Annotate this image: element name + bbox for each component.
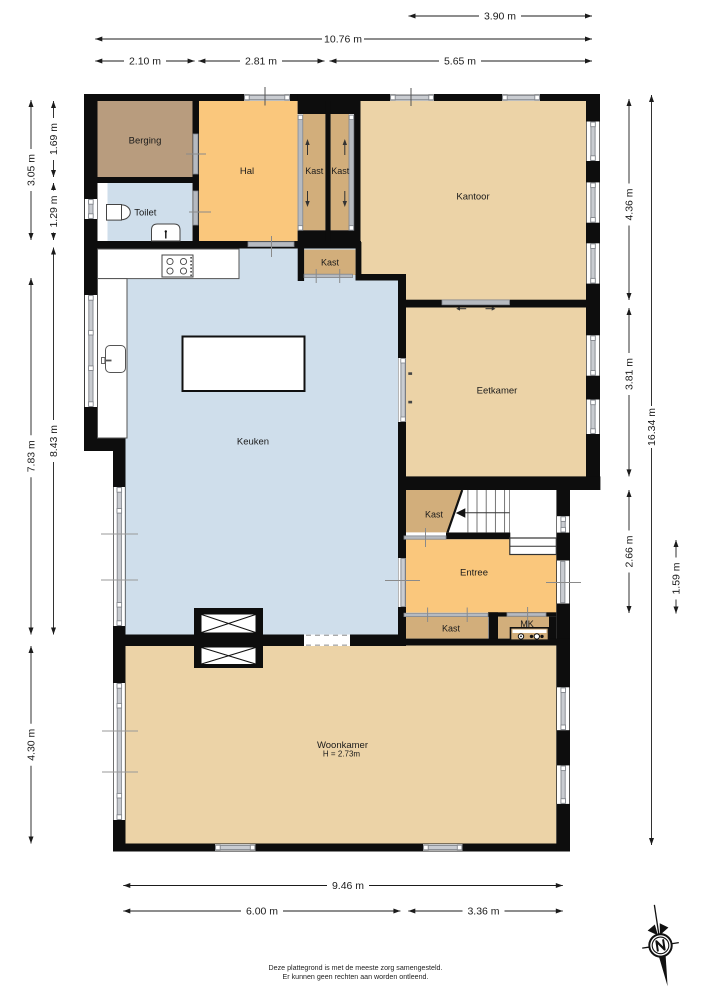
svg-text:7.83 m: 7.83 m bbox=[26, 440, 38, 472]
svg-text:Toilet: Toilet bbox=[134, 207, 157, 218]
svg-text:5.65 m: 5.65 m bbox=[444, 56, 476, 68]
svg-text:Kast: Kast bbox=[425, 509, 444, 519]
svg-text:Kantoor: Kantoor bbox=[456, 191, 489, 202]
svg-text:1.29 m: 1.29 m bbox=[48, 195, 60, 227]
svg-text:3.90 m: 3.90 m bbox=[484, 11, 516, 23]
svg-text:16.34 m: 16.34 m bbox=[646, 408, 658, 446]
svg-text:Kast: Kast bbox=[321, 257, 340, 267]
svg-text:Er kunnen geen rechten aan wor: Er kunnen geen rechten aan worden ontlee… bbox=[283, 973, 429, 981]
svg-text:4.30 m: 4.30 m bbox=[26, 728, 38, 760]
svg-text:3.05 m: 3.05 m bbox=[26, 154, 38, 186]
svg-text:2.81 m: 2.81 m bbox=[245, 56, 277, 68]
svg-text:Kast: Kast bbox=[442, 623, 461, 633]
svg-text:4.36 m: 4.36 m bbox=[624, 188, 636, 220]
svg-text:3.81 m: 3.81 m bbox=[624, 358, 636, 390]
svg-text:MK: MK bbox=[520, 619, 534, 629]
svg-text:6.00 m: 6.00 m bbox=[246, 906, 278, 918]
svg-text:8.43 m: 8.43 m bbox=[48, 425, 60, 457]
svg-text:1.59 m: 1.59 m bbox=[671, 562, 683, 594]
svg-text:10.76 m: 10.76 m bbox=[324, 34, 362, 46]
svg-text:Hal: Hal bbox=[240, 166, 254, 177]
svg-text:1.69 m: 1.69 m bbox=[48, 123, 60, 155]
svg-text:Kast: Kast bbox=[331, 166, 350, 176]
svg-text:Kast: Kast bbox=[305, 166, 324, 176]
svg-text:Berging: Berging bbox=[129, 135, 162, 146]
svg-text:Eetkamer: Eetkamer bbox=[477, 386, 518, 397]
svg-text:Entree: Entree bbox=[460, 567, 488, 578]
svg-text:Keuken: Keuken bbox=[237, 436, 269, 447]
svg-text:2.66 m: 2.66 m bbox=[624, 535, 636, 567]
svg-text:H = 2.73m: H = 2.73m bbox=[323, 749, 360, 758]
svg-text:3.36 m: 3.36 m bbox=[467, 906, 499, 918]
svg-text:Deze plattegrond is met de mee: Deze plattegrond is met de meeste zorg s… bbox=[269, 964, 443, 972]
svg-text:2.10 m: 2.10 m bbox=[129, 56, 161, 68]
svg-text:9.46 m: 9.46 m bbox=[332, 880, 364, 892]
